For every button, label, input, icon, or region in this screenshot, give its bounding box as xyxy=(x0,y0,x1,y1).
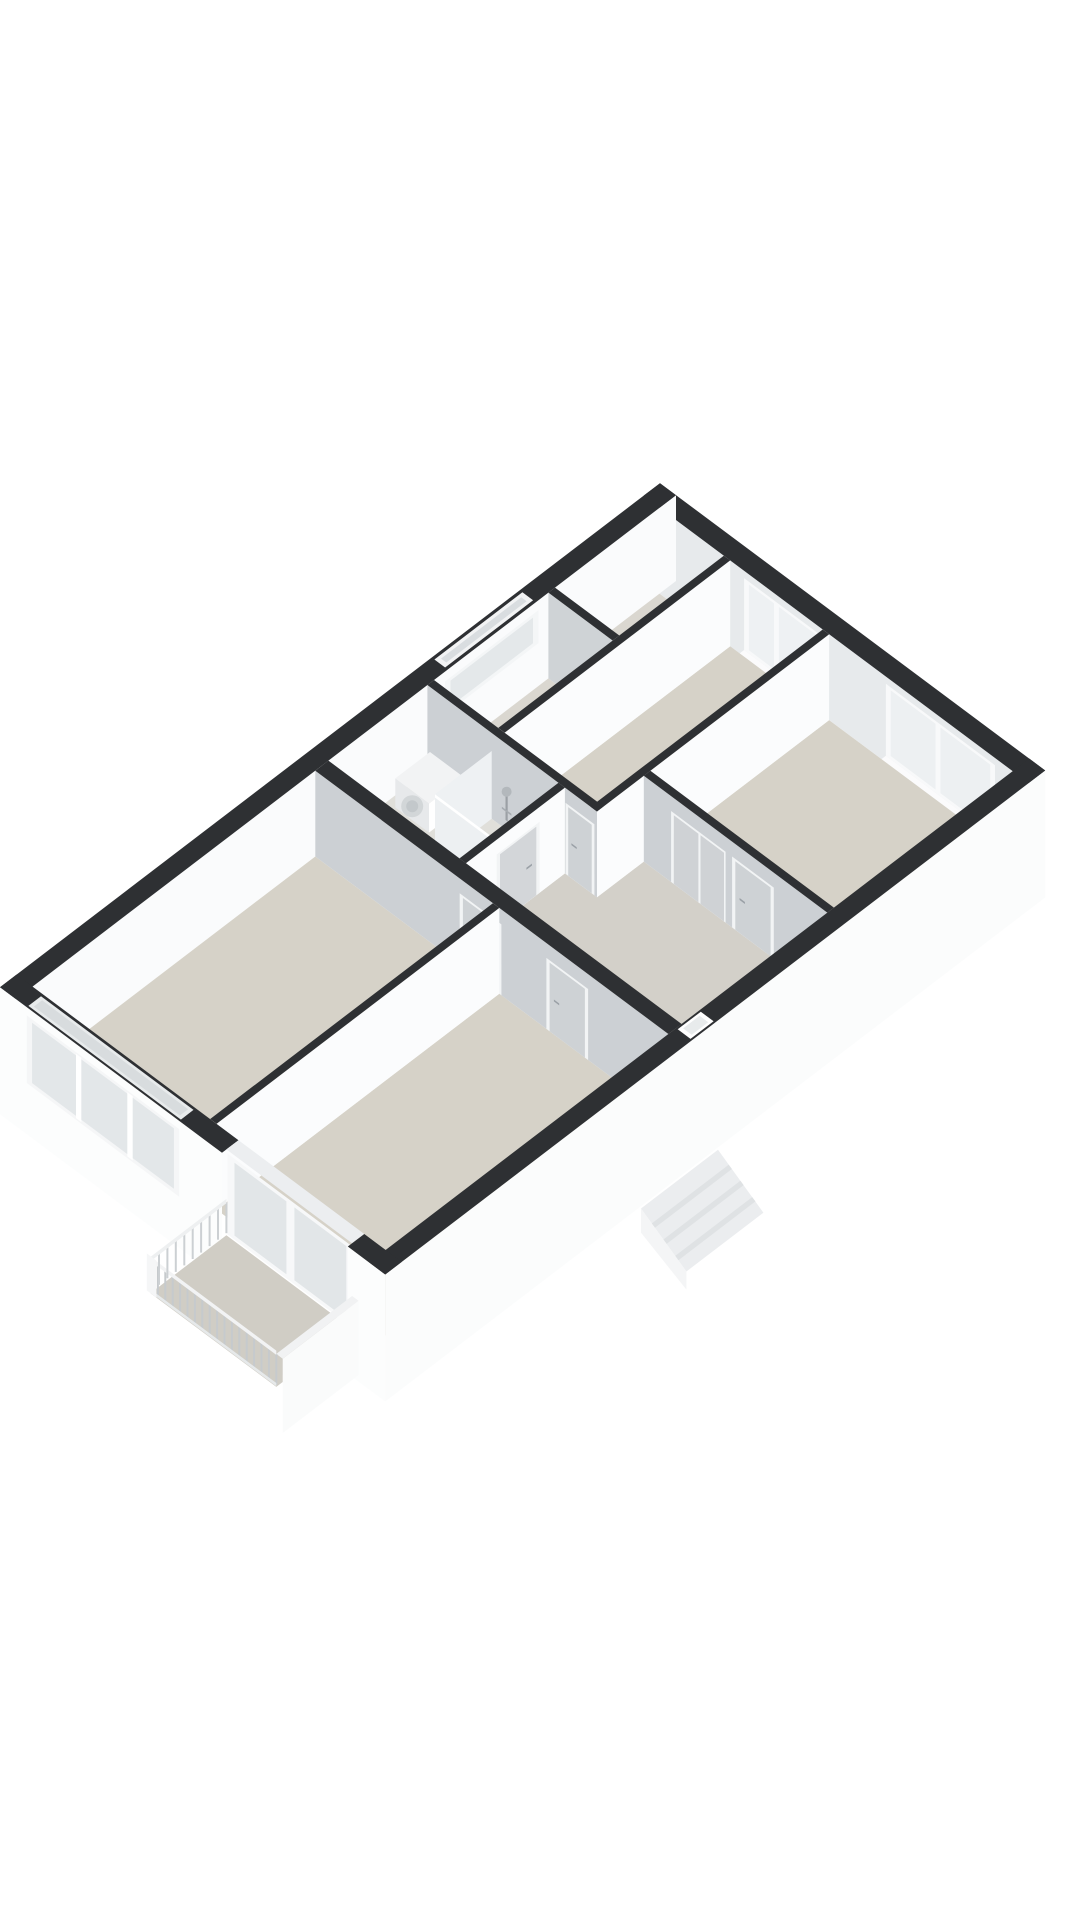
floorplan-3d-render xyxy=(0,0,1080,1920)
shower-fixture-1-head xyxy=(502,787,512,797)
balcony-corner-post xyxy=(147,1253,157,1297)
floorplan-viewport xyxy=(0,0,1080,1920)
master-window-mullion-1 xyxy=(76,1054,81,1122)
washing-machine-door-glass xyxy=(406,800,418,812)
master-window-mullion-2 xyxy=(127,1092,132,1160)
